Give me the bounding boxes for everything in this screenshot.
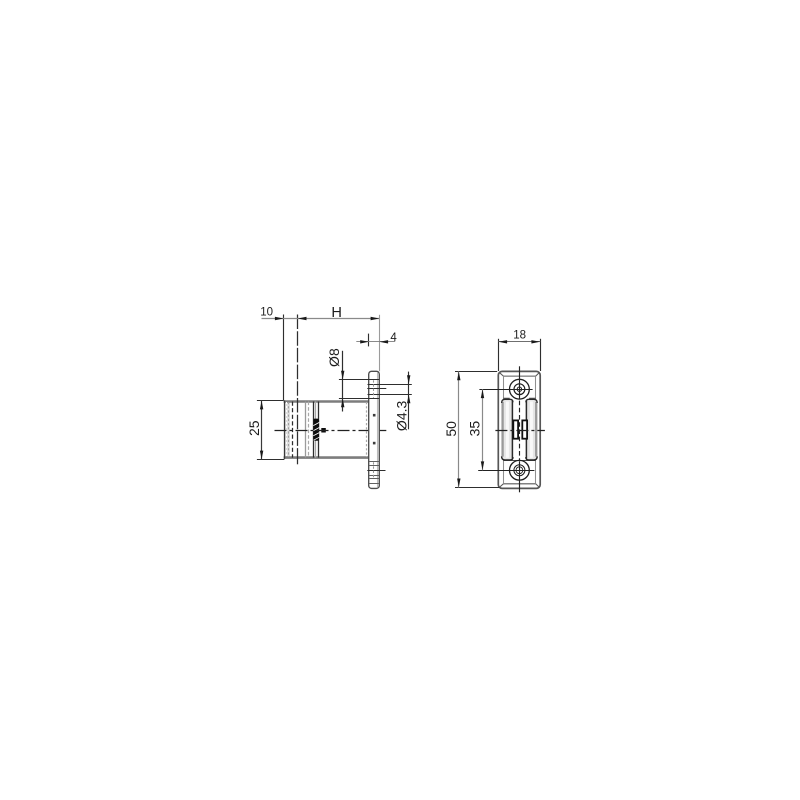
svg-text:4: 4 [390, 332, 397, 344]
svg-text:10: 10 [260, 307, 273, 319]
svg-text:H: H [331, 305, 342, 321]
svg-text:35: 35 [466, 421, 482, 437]
svg-text:Ø4.3: Ø4.3 [393, 401, 409, 432]
svg-text:50: 50 [443, 421, 459, 437]
svg-text:25: 25 [246, 420, 262, 436]
svg-text:18: 18 [513, 329, 526, 341]
svg-text:Ø8: Ø8 [326, 348, 342, 367]
